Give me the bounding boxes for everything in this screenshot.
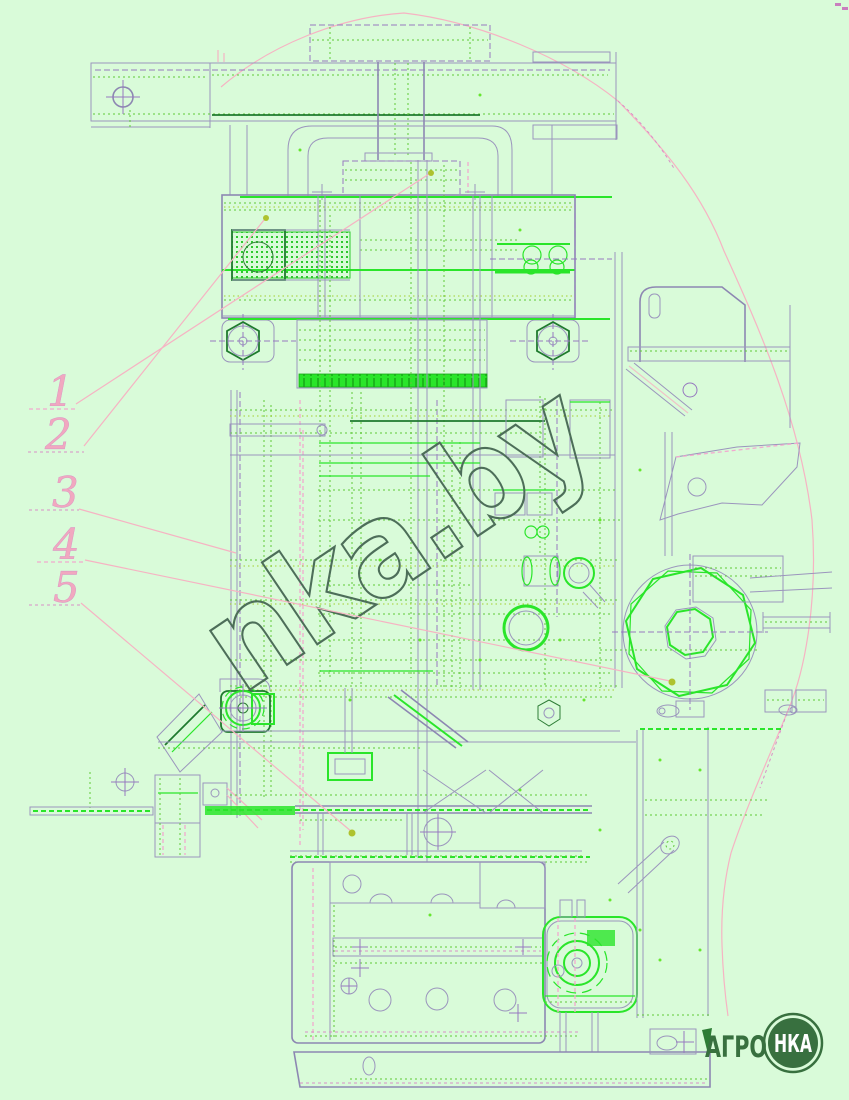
watermark-text: nka.by (174, 353, 617, 721)
cad-sheet: nka.by 1 2 3 4 5 (0, 0, 849, 1100)
logo-circle-text: НКА (774, 1029, 812, 1058)
corner-mark (835, 3, 848, 10)
head-assembly (230, 25, 612, 200)
lower-assembly (30, 679, 636, 862)
logo: АГРО НКА (705, 1014, 822, 1072)
bottom-panel (290, 851, 582, 1043)
logo-left-text: АГРО (705, 1030, 767, 1064)
octagon-wheel (612, 554, 832, 717)
right-bracket (626, 287, 790, 556)
callout-4-dot (669, 679, 676, 686)
callout-5-dot (349, 830, 356, 837)
watermark: nka.by (174, 353, 617, 721)
left-bolt (210, 314, 296, 370)
cad-drawing: nka.by 1 2 3 4 5 (0, 0, 849, 1100)
support-wing (660, 443, 800, 520)
callout-1-dot (428, 170, 434, 176)
callout-2-dot (263, 215, 269, 221)
gearbox-cover (543, 900, 637, 1052)
base-plate (294, 1028, 712, 1087)
